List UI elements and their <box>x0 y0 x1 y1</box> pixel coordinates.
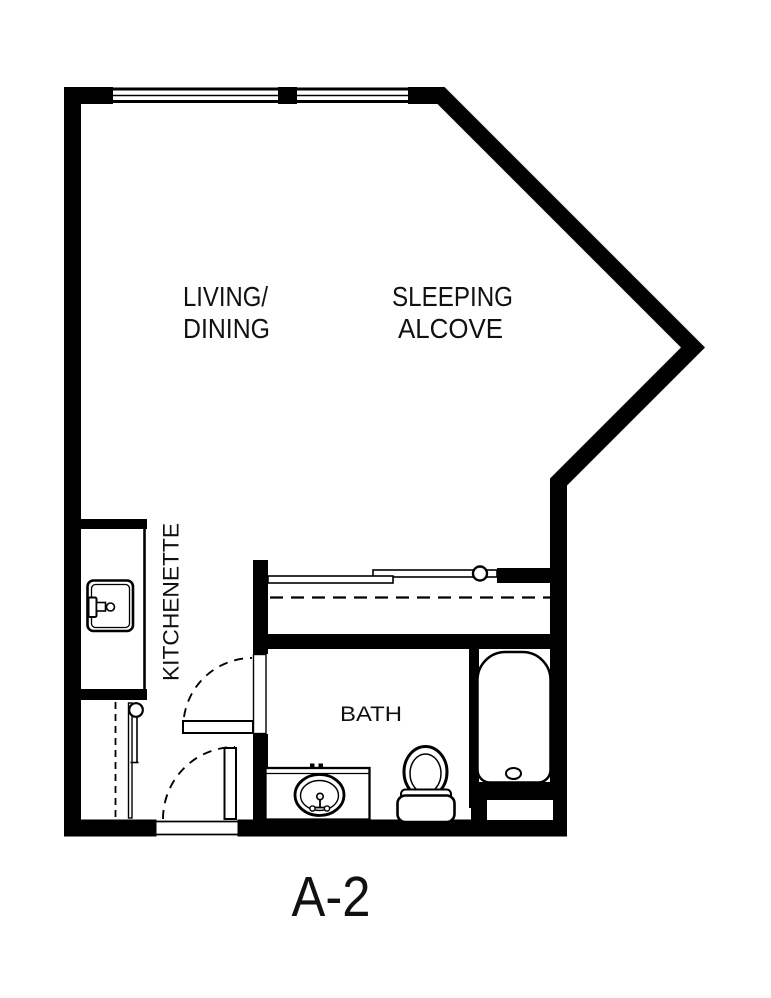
closet-knob-icon <box>129 703 143 717</box>
toilet <box>398 747 455 823</box>
entry-door-leaf <box>225 748 237 819</box>
bath-door-leaf <box>183 721 253 733</box>
bath-door-swing-arc <box>184 658 252 717</box>
floor-plan-drawing: LIVING/ DINING SLEEPING ALCOVE KITCHENET… <box>0 0 771 998</box>
floor-plan-page: LIVING/ DINING SLEEPING ALCOVE KITCHENET… <box>0 0 771 998</box>
living-dining-label-line1: LIVING/ <box>183 281 268 312</box>
entry-opening <box>157 819 238 839</box>
window-top-left <box>113 86 278 106</box>
bathroom-vanity <box>266 764 370 820</box>
sleeping-alcove-label-line1: SLEEPING <box>392 281 513 312</box>
sleeping-alcove-label-line2: ALCOVE <box>398 313 503 344</box>
living-dining-label-line2: DINING <box>183 313 270 344</box>
bath-label: BATH <box>340 703 402 726</box>
kitchen-sink <box>88 581 134 632</box>
window-top-right <box>297 86 408 106</box>
bathtub <box>478 652 551 783</box>
bath-door-opening <box>254 655 267 734</box>
toilet-tank <box>398 796 455 823</box>
bath-niche <box>487 800 553 820</box>
entry-closet <box>116 702 143 818</box>
entry-door <box>163 747 236 819</box>
niche-left-wall <box>471 795 487 828</box>
kitchenette-label: KITCHENETTE <box>159 523 184 681</box>
bath-door <box>183 655 266 734</box>
sliding-door-knob-icon <box>473 567 487 581</box>
unit-label: A-2 <box>292 865 371 929</box>
bath-north-wall <box>253 634 567 649</box>
closet-side-wall <box>497 568 552 583</box>
vanity-sink-icon <box>295 775 344 816</box>
tub-drain-icon <box>506 768 521 779</box>
